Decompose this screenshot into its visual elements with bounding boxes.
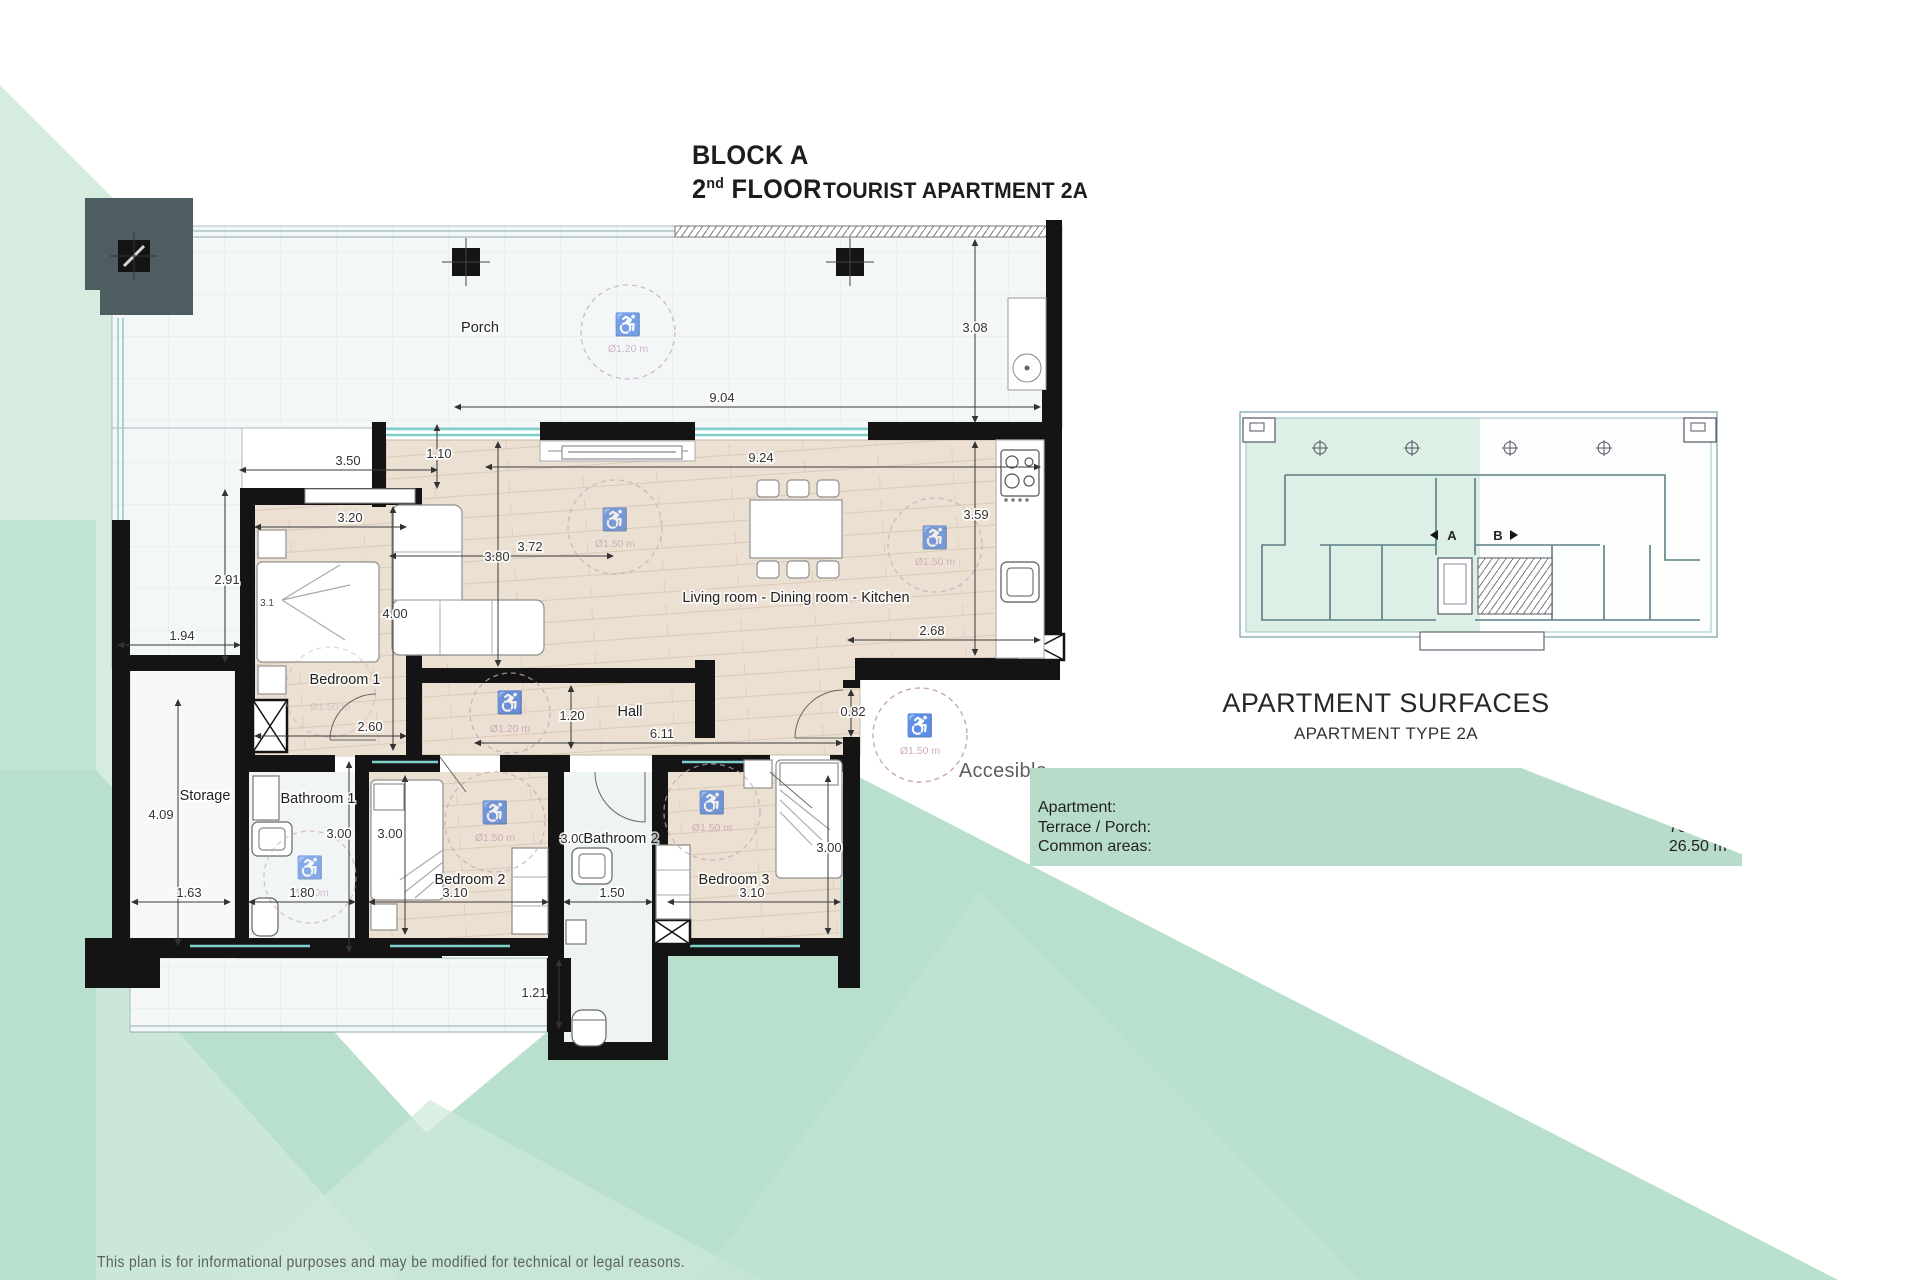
room-label-bedroom1: Bedroom 1	[310, 672, 381, 688]
surface-label: Terrace / Porch:	[1038, 818, 1151, 838]
svg-text:3.00: 3.00	[816, 840, 841, 855]
svg-text:3.80: 3.80	[484, 549, 509, 564]
svg-text:4.09: 4.09	[148, 807, 173, 822]
title-floor: 2nd FLOOR	[692, 174, 822, 205]
surface-value: 26.50 m²	[1669, 837, 1732, 857]
svg-text:1.80: 1.80	[289, 885, 314, 900]
svg-text:3.00: 3.00	[560, 831, 585, 846]
table-row: Common areas: 26.50 m²	[1038, 837, 1732, 857]
surfaces-subtitle: APARTMENT TYPE 2A	[1030, 724, 1742, 744]
wheelchair-icon: ♿	[906, 713, 933, 738]
svg-text:3.59: 3.59	[963, 507, 988, 522]
svg-text:3.08: 3.08	[962, 320, 987, 335]
room-label-storage: Storage	[180, 788, 231, 804]
room-label-living: Living room - Dining room - Kitchen	[682, 590, 909, 606]
svg-text:1.21: 1.21	[521, 985, 546, 1000]
circle-label: Ø1.50 m	[915, 556, 956, 568]
apartment-surfaces-panel: APARTMENT SURFACES APARTMENT TYPE 2A Apa…	[1030, 688, 1742, 866]
table-row: Terrace / Porch: 70.40 m²	[1038, 818, 1732, 838]
disclaimer-text: This plan is for informational purposes …	[97, 1254, 685, 1272]
svg-text:3.1: 3.1	[260, 598, 274, 609]
svg-text:1.20: 1.20	[559, 708, 584, 723]
keyplan-label-a: A	[1447, 528, 1457, 543]
title-apartment: TOURIST APARTMENT 2A	[823, 178, 1088, 204]
surface-label: Apartment:	[1038, 798, 1116, 818]
room-label-bedroom2: Bedroom 2	[435, 872, 506, 888]
circle-label: Ø1.50 m	[692, 822, 733, 834]
svg-text:2.60: 2.60	[357, 719, 382, 734]
surfaces-table: Apartment: 106.20 m² Terrace / Porch: 70…	[1030, 768, 1742, 866]
key-plan: A B	[1240, 412, 1717, 650]
title-block-a: BLOCK A	[692, 140, 822, 171]
circle-label: Ø1.50 m	[900, 745, 941, 757]
surface-value: 106.20 m²	[1660, 798, 1732, 818]
surface-value: 70.40 m²	[1669, 818, 1732, 838]
keyplan-label-b: B	[1493, 528, 1502, 543]
room-label-hall: Hall	[618, 704, 643, 720]
svg-text:3.50: 3.50	[335, 453, 360, 468]
svg-text:3.20: 3.20	[337, 510, 362, 525]
svg-text:9.04: 9.04	[709, 390, 734, 405]
circle-label: Ø1.50 m	[595, 538, 636, 550]
wheelchair-icon: ♿	[296, 855, 323, 880]
circle-label: Ø1.20 m	[608, 343, 649, 355]
corner-structure	[85, 198, 193, 315]
circle-label: Ø1.50 m	[475, 832, 516, 844]
circle-label: Ø1.20 m	[490, 723, 531, 735]
wheelchair-icon: ♿	[921, 525, 948, 550]
svg-text:3.00: 3.00	[377, 826, 402, 841]
svg-text:0.82: 0.82	[840, 704, 865, 719]
wheelchair-icon: ♿	[496, 690, 523, 715]
svg-text:1.63: 1.63	[176, 885, 201, 900]
svg-text:9.24: 9.24	[748, 450, 773, 465]
wheelchair-icon: ♿	[481, 800, 508, 825]
svg-text:3.72: 3.72	[517, 539, 542, 554]
room-label-bathroom1: Bathroom 1	[281, 791, 356, 807]
circle-label: Ø1.50 m	[310, 701, 351, 713]
svg-text:2.68: 2.68	[919, 623, 944, 638]
svg-text:1.50: 1.50	[599, 885, 624, 900]
svg-text:1.10: 1.10	[426, 446, 451, 461]
wheelchair-icon: ♿	[601, 507, 628, 532]
svg-text:6.11: 6.11	[650, 726, 674, 741]
svg-text:2.91: 2.91	[214, 572, 239, 587]
floor-plan-page: ♿ Ø1.20 m ♿ Ø1.50 m ♿ Ø1.50 m Ø1.50 m ♿ …	[0, 0, 1920, 1280]
svg-text:3.00: 3.00	[326, 826, 351, 841]
plan-title: BLOCK A 2nd FLOOR	[692, 140, 830, 205]
svg-text:4.00: 4.00	[382, 606, 407, 621]
table-row: Apartment: 106.20 m²	[1038, 798, 1732, 818]
svg-text:1.94: 1.94	[169, 628, 194, 643]
surfaces-title: APARTMENT SURFACES	[1030, 688, 1742, 719]
wheelchair-icon: ♿	[614, 312, 641, 337]
room-label-porch: Porch	[461, 320, 499, 336]
terrace-hatch-band	[675, 226, 1047, 237]
wheelchair-icon: ♿	[698, 790, 725, 815]
surface-label: Common areas:	[1038, 837, 1152, 857]
room-label-bathroom2: Bathroom 2	[584, 831, 659, 847]
room-label-bedroom3: Bedroom 3	[699, 872, 770, 888]
